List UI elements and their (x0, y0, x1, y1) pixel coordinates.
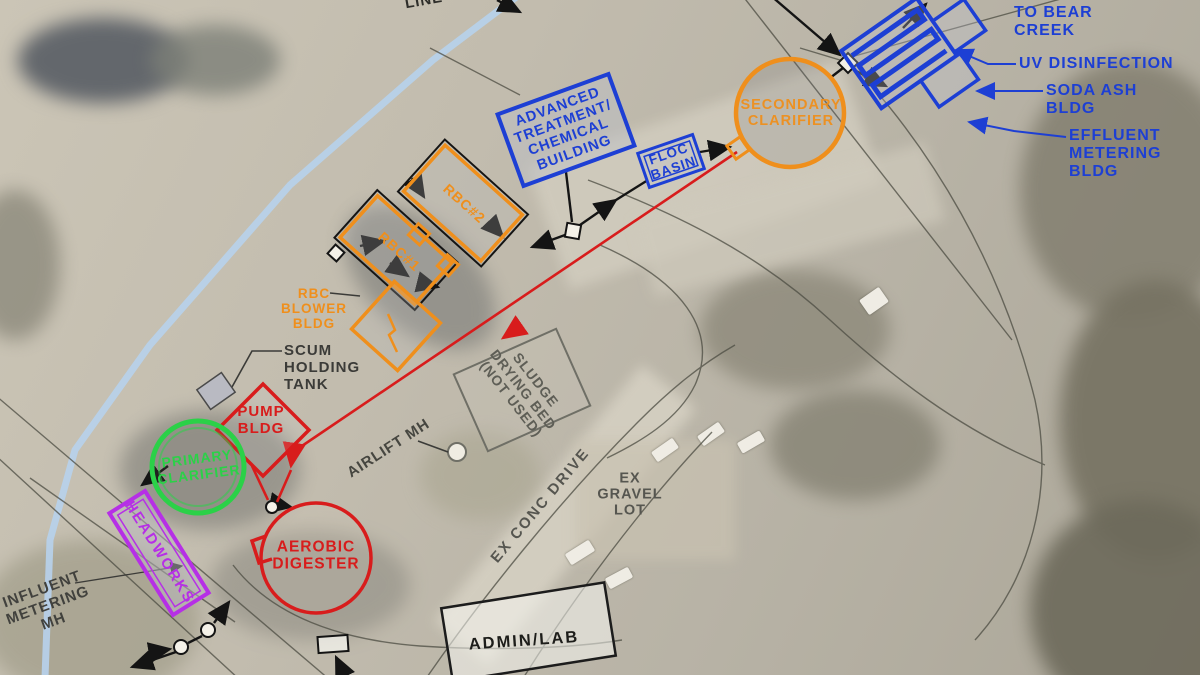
label-to-bear-creek: TO BEAR CREEK (1014, 4, 1093, 40)
label-rbc-blower-bldg: RBC BLOWER BLDG (280, 286, 348, 331)
manhole-node (201, 623, 215, 637)
admin-lab-building (441, 582, 616, 675)
scum-holding-tank-box (197, 373, 235, 410)
label-soda-ash-bldg: SODA ASH BLDG (1046, 82, 1137, 118)
manhole-node (174, 640, 188, 654)
site-plan-canvas: LINE TO BEAR CREEK UV DISINFECTION SODA … (0, 0, 1200, 675)
manhole-node (266, 501, 278, 513)
small-structure (317, 635, 348, 653)
label-pump-bldg: PUMP BLDG (237, 404, 284, 438)
airlift-manhole (448, 443, 466, 461)
label-uv-disinfection: UV DISINFECTION (1019, 55, 1174, 73)
rbc-structures (340, 145, 522, 370)
label-ex-gravel-lot: EX GRAVEL LOT (597, 471, 662, 520)
label-aerobic-digester: AEROBIC DIGESTER (272, 539, 359, 574)
label-scum-holding-tank: SCUM HOLDING TANK (284, 343, 360, 393)
label-effluent-metering-bldg: EFFLUENT METERING BLDG (1069, 127, 1161, 181)
square-node (565, 223, 581, 239)
label-secondary-clarifier: SECONDARY CLARIFIER (740, 97, 841, 129)
square-node (328, 245, 345, 262)
